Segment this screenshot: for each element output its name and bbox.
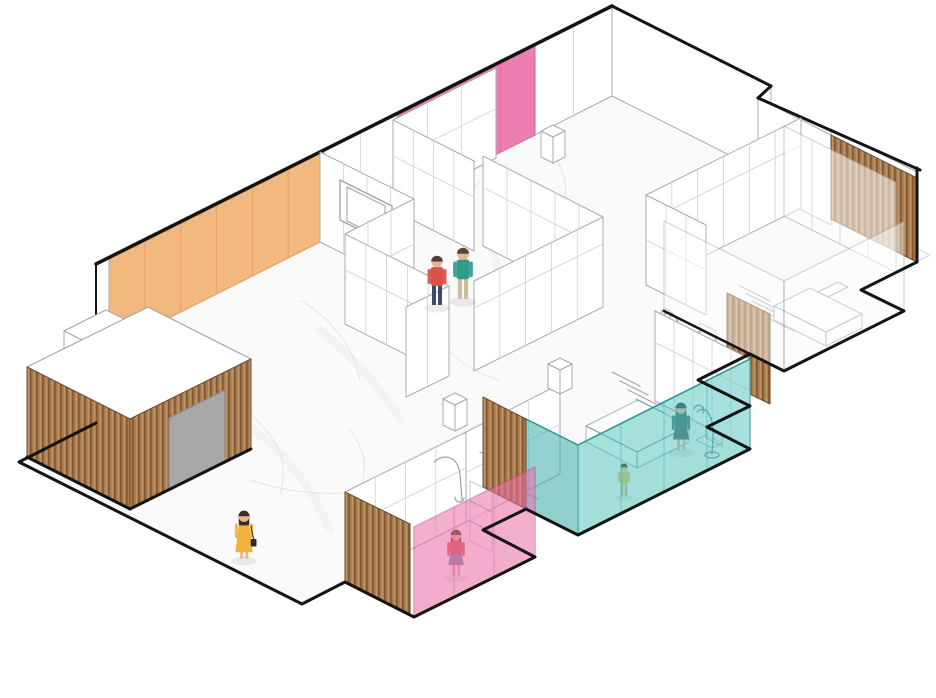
isometric-apartment-illustration	[0, 0, 936, 698]
pillar1-front	[541, 131, 553, 163]
floorplan-svg	[0, 0, 936, 698]
pillar3-front	[443, 399, 455, 431]
pillar1-side	[553, 131, 565, 163]
floorplan-scene	[19, 6, 930, 617]
pillar3-side	[455, 399, 467, 431]
